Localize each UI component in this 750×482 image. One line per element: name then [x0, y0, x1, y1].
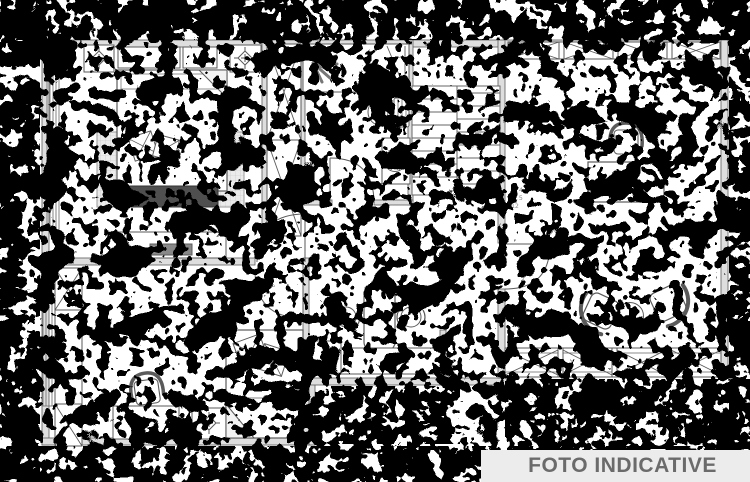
scan-noise-overlay — [0, 0, 750, 482]
watermark-text: FOTO INDICATIVE — [528, 454, 717, 478]
floor-plan-svg: 3,4 0,5 12 — [0, 0, 750, 482]
watermark-banner: FOTO INDICATIVE — [481, 450, 750, 482]
floor-plan-screenshot: 3,4 0,5 12 — [0, 0, 750, 482]
